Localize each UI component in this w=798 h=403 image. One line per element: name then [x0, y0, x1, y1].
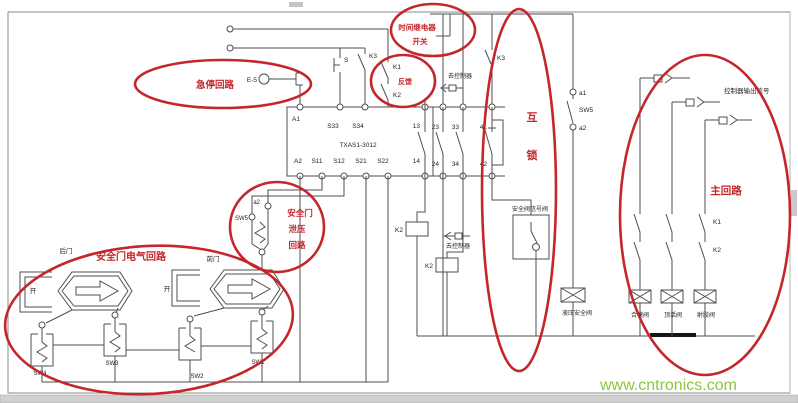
- k2-row-label: K2: [713, 247, 721, 254]
- sw5-aux-label: SW5: [579, 107, 593, 114]
- terminal-a2-aux: [570, 124, 576, 130]
- connector-2-icon: [686, 99, 694, 106]
- rear-door-label: 后门: [60, 246, 73, 255]
- valve-eject-label: 顶活阀: [664, 311, 682, 319]
- valve-inject-label: 射胶阀: [697, 311, 715, 319]
- k1-row-label: K1: [713, 219, 721, 226]
- hydraulic-safety-valve-label: 液压安全阀: [562, 309, 592, 317]
- reset-switch-label-2: 开关: [413, 36, 428, 46]
- start-button-label: S: [344, 57, 349, 64]
- k3-left-label: K3: [369, 53, 377, 60]
- label-33: 33: [452, 124, 460, 131]
- k2-coil-b-label: K2: [425, 263, 433, 270]
- label-23: 23: [432, 124, 440, 131]
- terminal-a1-aux: [570, 89, 576, 95]
- door-relief-label-2: 泄压: [288, 224, 306, 234]
- top-tick: [289, 2, 303, 7]
- label-14: 14: [413, 158, 421, 165]
- k1-contact-label: K1: [393, 64, 401, 71]
- sw2-plunger-icon: [187, 316, 193, 322]
- interlock-char-2: 锁: [527, 148, 538, 162]
- label-s12: S12: [333, 158, 345, 165]
- k2-contact-label: K2: [393, 92, 401, 99]
- interlock-char-1: 互: [527, 111, 538, 124]
- terminal-s34: [362, 104, 368, 110]
- label-s22: S22: [377, 158, 389, 165]
- connector-bottom-icon: [455, 233, 462, 239]
- door-relief-label-3: 回路: [288, 240, 306, 250]
- label-24: 24: [432, 161, 440, 168]
- label-s21: S21: [355, 158, 367, 165]
- supply-terminal-1: [227, 26, 233, 32]
- estop-button-icon: [259, 74, 269, 84]
- door-relief-label-1: 安全门: [287, 208, 313, 218]
- wiring-diagram: E-5 S K3 K1 K2 K3 去控制器: [0, 0, 798, 403]
- terminal-s33: [337, 104, 343, 110]
- label-s11: S11: [311, 158, 322, 165]
- label-34: 34: [452, 161, 460, 168]
- relay-model: TXAS1-3012: [339, 142, 377, 149]
- sw5-terminal: [249, 214, 255, 220]
- safety-valve-signal-label: 安全阀信号阀: [512, 205, 548, 213]
- a2-aux-label: a2: [579, 125, 587, 132]
- ground-bar-icon: [650, 333, 696, 337]
- connector-top-icon: [449, 85, 456, 91]
- terminal-a1: [297, 104, 303, 110]
- k2-coil-a-label: K2: [395, 227, 403, 234]
- sw3-plunger-icon: [112, 312, 118, 318]
- label-13: 13: [413, 123, 421, 130]
- label-a1: A1: [292, 116, 300, 123]
- sw3-label: SW3: [105, 361, 119, 367]
- door-open-a-label: 开: [30, 287, 37, 295]
- sw5-a2-label: a2: [253, 200, 260, 206]
- to-controller-top-label: 去控制器: [448, 72, 472, 80]
- reset-switch-label-1: 时间继电器: [398, 22, 436, 32]
- sw5-label: SW5: [235, 216, 249, 222]
- k3-right-label: K3: [497, 55, 505, 62]
- schematic-page: E-5 S K3 K1 K2 K3 去控制器: [0, 0, 798, 403]
- a1-aux-label: a1: [579, 90, 587, 97]
- sw1-plunger-icon: [259, 309, 265, 315]
- bottom-strip: [0, 395, 798, 403]
- door-electrical-loop-label: 安全门电气回路: [96, 250, 167, 263]
- sw5-terminal-a2: [265, 203, 271, 209]
- estop-label: E-5: [247, 77, 258, 84]
- front-door-label: 前门: [207, 254, 220, 263]
- signal-box-terminal: [533, 244, 540, 251]
- emergency-stop-loop-label: 急停回路: [196, 79, 235, 91]
- sw5-bottom-terminal: [259, 249, 265, 255]
- supply-terminal-2: [227, 45, 233, 51]
- door-open-b-label: 开: [164, 285, 171, 293]
- feedback-label: 反馈: [398, 77, 412, 86]
- to-controller-bottom-label: 去控制器: [446, 242, 470, 250]
- label-s34: S34: [352, 123, 364, 130]
- main-loop-label: 主回路: [710, 184, 742, 197]
- controller-output-label: 控制器输出信号: [724, 86, 770, 95]
- connector-3-icon: [719, 117, 727, 124]
- watermark: www.cntronics.com: [599, 377, 737, 394]
- label-a2: A2: [294, 158, 302, 165]
- sw2-label: SW2: [190, 374, 204, 380]
- sw4-plunger-icon: [39, 322, 45, 328]
- scrollbar-thumb[interactable]: [791, 190, 797, 216]
- label-s33: S33: [327, 123, 339, 130]
